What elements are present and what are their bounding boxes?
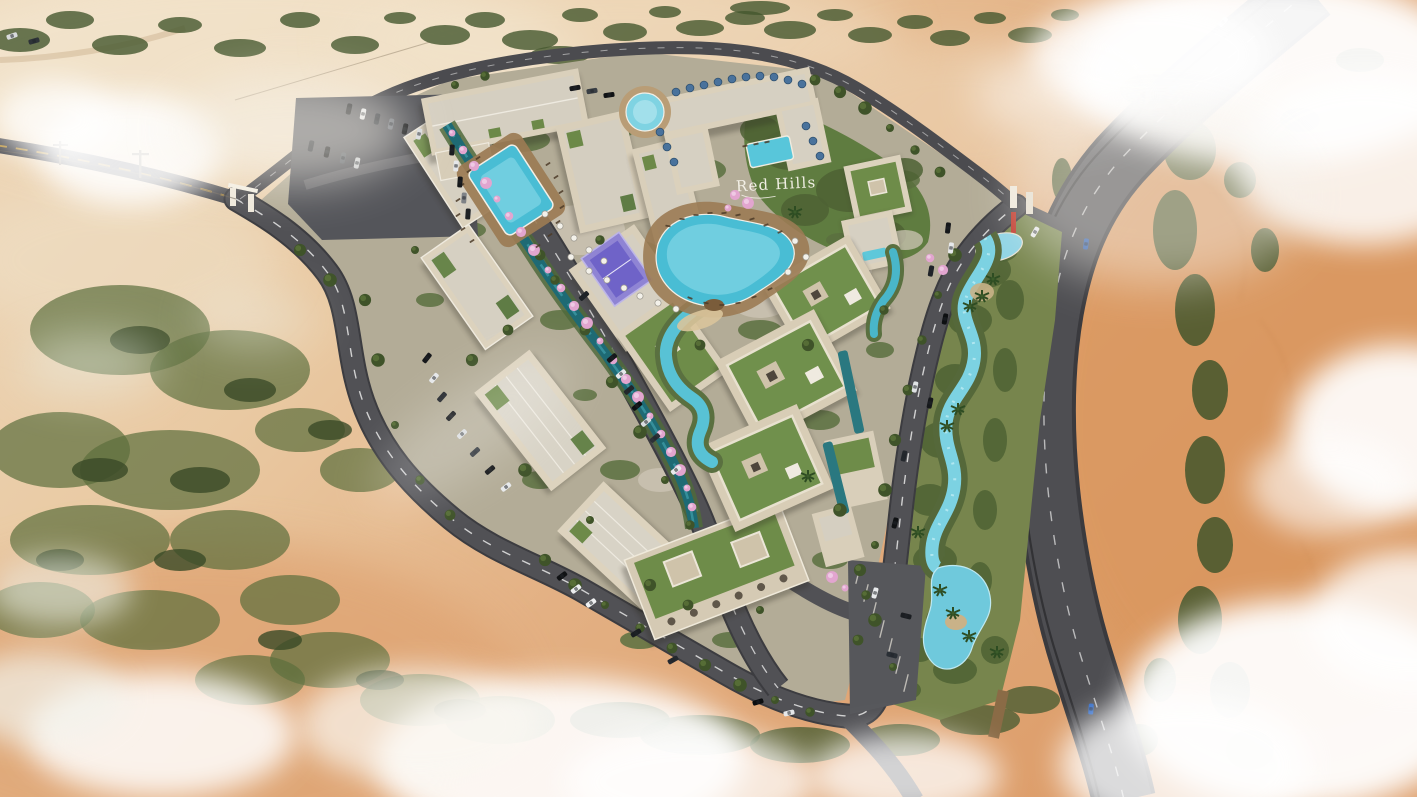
blue-umbrella <box>816 152 824 160</box>
vegetation-patch <box>214 39 266 57</box>
blossom-tree <box>545 267 552 274</box>
tree <box>411 246 419 254</box>
blossom-tree <box>494 196 501 203</box>
car <box>453 160 459 171</box>
blue-umbrella <box>742 73 750 81</box>
blue-umbrella <box>802 122 810 130</box>
vegetation-patch <box>993 348 1017 392</box>
tree <box>771 696 779 704</box>
tree <box>903 385 914 396</box>
tree <box>833 503 847 517</box>
blue-umbrella <box>770 73 778 81</box>
white-umbrella <box>586 247 592 253</box>
vegetation-patch <box>973 490 997 530</box>
blossom-tree <box>459 146 468 155</box>
tree <box>879 305 888 314</box>
tree <box>695 340 706 351</box>
tree <box>871 541 879 549</box>
tree <box>861 590 870 599</box>
white-umbrella <box>673 306 679 312</box>
tree <box>756 606 764 614</box>
blossom-tree <box>730 190 740 200</box>
tree <box>878 483 892 497</box>
tree <box>601 601 609 609</box>
white-umbrella <box>571 235 577 241</box>
white-umbrella <box>568 254 574 260</box>
blossom-tree <box>926 254 935 263</box>
vegetation-patch <box>649 6 681 18</box>
blue-umbrella <box>670 158 678 166</box>
vegetation-patch <box>817 9 853 21</box>
blossom-tree <box>742 197 754 209</box>
tree <box>606 376 618 388</box>
tree <box>910 145 919 154</box>
vegetation-patch <box>981 636 1009 664</box>
sun-lounger <box>679 218 684 220</box>
vegetation-patch <box>46 11 94 29</box>
sun-lounger <box>707 212 712 214</box>
vegetation-patch <box>92 35 148 55</box>
tree <box>595 235 604 244</box>
cloud <box>1250 435 1410 535</box>
cloud <box>300 667 540 783</box>
vegetation-patch <box>416 293 444 307</box>
tree <box>371 353 385 367</box>
tree <box>834 86 846 98</box>
vegetation-patch <box>240 575 340 625</box>
tree <box>805 707 814 716</box>
vegetation-patch <box>848 27 892 43</box>
tree <box>934 291 942 299</box>
car <box>465 208 471 219</box>
car <box>449 144 455 155</box>
sun-lounger <box>719 304 724 306</box>
tree <box>661 476 669 484</box>
vegetation-patch <box>154 549 206 571</box>
haze <box>170 75 410 185</box>
blossom-tree <box>938 265 948 275</box>
tree <box>466 354 478 366</box>
tree <box>518 463 532 477</box>
aerial-scene: Red Hills <box>0 0 1417 797</box>
white-umbrella <box>542 211 548 217</box>
vegetation-patch <box>866 342 894 358</box>
white-umbrella <box>621 285 627 291</box>
blue-umbrella <box>784 76 792 84</box>
tree <box>683 600 694 611</box>
blossom-tree <box>725 205 732 212</box>
vegetation-patch <box>331 36 379 54</box>
tree <box>935 167 946 178</box>
sun-lounger <box>693 214 698 216</box>
tree <box>480 71 489 80</box>
vegetation-patch <box>764 21 816 39</box>
vegetation-patch <box>170 467 230 493</box>
vegetation-patch <box>573 389 597 401</box>
white-umbrella <box>803 254 809 260</box>
vegetation-patch <box>996 280 1024 320</box>
tree <box>889 663 897 671</box>
tree <box>503 325 514 336</box>
blossom-tree <box>557 284 566 293</box>
blossom-tree <box>597 338 604 345</box>
tree <box>810 75 821 86</box>
white-umbrella <box>586 268 592 274</box>
blossom-tree <box>842 585 849 592</box>
tree <box>853 635 864 646</box>
blossom-tree <box>449 130 456 137</box>
tree <box>323 273 337 287</box>
vegetation-patch <box>72 458 128 482</box>
tree <box>699 659 711 671</box>
blue-umbrella <box>714 78 722 86</box>
tree <box>868 613 882 627</box>
blue-umbrella <box>672 88 680 96</box>
white-umbrella <box>557 223 563 229</box>
vegetation-patch <box>1197 517 1233 573</box>
vegetation-patch <box>974 12 1006 24</box>
white-umbrella <box>637 293 643 299</box>
tree <box>685 520 694 529</box>
blossom-tree <box>684 485 691 492</box>
tree <box>854 564 866 576</box>
vegetation-patch <box>384 12 416 24</box>
tree <box>294 244 306 256</box>
blue-umbrella <box>798 80 806 88</box>
vegetation-patch <box>420 25 470 45</box>
tree <box>550 275 559 284</box>
vegetation-patch <box>258 630 302 650</box>
blossom-tree <box>505 212 514 221</box>
vegetation-patch <box>224 378 276 402</box>
blossom-tree <box>569 301 579 311</box>
tree <box>917 335 926 344</box>
tree <box>644 579 656 591</box>
tree <box>858 101 872 115</box>
vegetation-patch <box>1185 436 1225 504</box>
tree <box>539 554 551 566</box>
tree <box>445 510 456 521</box>
tree <box>633 425 647 439</box>
vegetation-patch <box>930 30 970 46</box>
white-umbrella <box>655 300 661 306</box>
vegetation-patch <box>983 418 1007 462</box>
white-umbrella <box>792 238 798 244</box>
haze <box>975 53 1145 137</box>
white-umbrella <box>604 277 610 283</box>
car <box>457 176 463 187</box>
blossom-tree <box>632 391 644 403</box>
tree <box>802 339 814 351</box>
blue-umbrella <box>756 72 764 80</box>
blossom-tree <box>516 227 526 237</box>
vegetation-patch <box>465 12 505 28</box>
tree <box>391 421 399 429</box>
vegetation-patch <box>1192 360 1228 420</box>
blue-umbrella <box>809 137 817 145</box>
car <box>1088 703 1094 714</box>
vegetation-patch <box>600 460 640 480</box>
vegetation-patch <box>897 15 933 29</box>
vegetation-patch <box>676 20 724 36</box>
blossom-tree <box>480 177 492 189</box>
blossom-tree <box>826 571 838 583</box>
blue-umbrella <box>728 75 736 83</box>
cloud <box>0 80 115 160</box>
cloud-wisp <box>18 335 162 395</box>
tree <box>586 516 594 524</box>
vegetation-patch <box>562 8 598 22</box>
vegetation-patch <box>158 17 202 33</box>
vegetation-patch <box>603 23 647 41</box>
cloud-wisp <box>195 294 315 346</box>
blossom-tree <box>581 317 593 329</box>
blue-umbrella <box>686 84 694 92</box>
tree <box>451 81 459 89</box>
tree <box>359 294 371 306</box>
blue-umbrella <box>663 143 671 151</box>
blossom-tree <box>666 447 676 457</box>
tree <box>667 643 678 654</box>
vegetation-patch <box>1000 686 1060 714</box>
white-umbrella <box>601 258 607 264</box>
tree <box>886 124 894 132</box>
blue-umbrella <box>656 128 664 136</box>
vegetation-patch <box>280 12 320 28</box>
white-umbrella <box>785 269 791 275</box>
vegetation-patch <box>730 1 790 15</box>
vegetation-patch <box>1175 274 1215 346</box>
blue-umbrella <box>700 81 708 89</box>
tree <box>733 678 747 692</box>
vegetation-patch <box>308 420 352 440</box>
tree <box>889 434 901 446</box>
car <box>461 192 467 203</box>
blossom-tree <box>688 503 697 512</box>
red-hills-aerial-rendering: Red Hills <box>0 0 1417 797</box>
